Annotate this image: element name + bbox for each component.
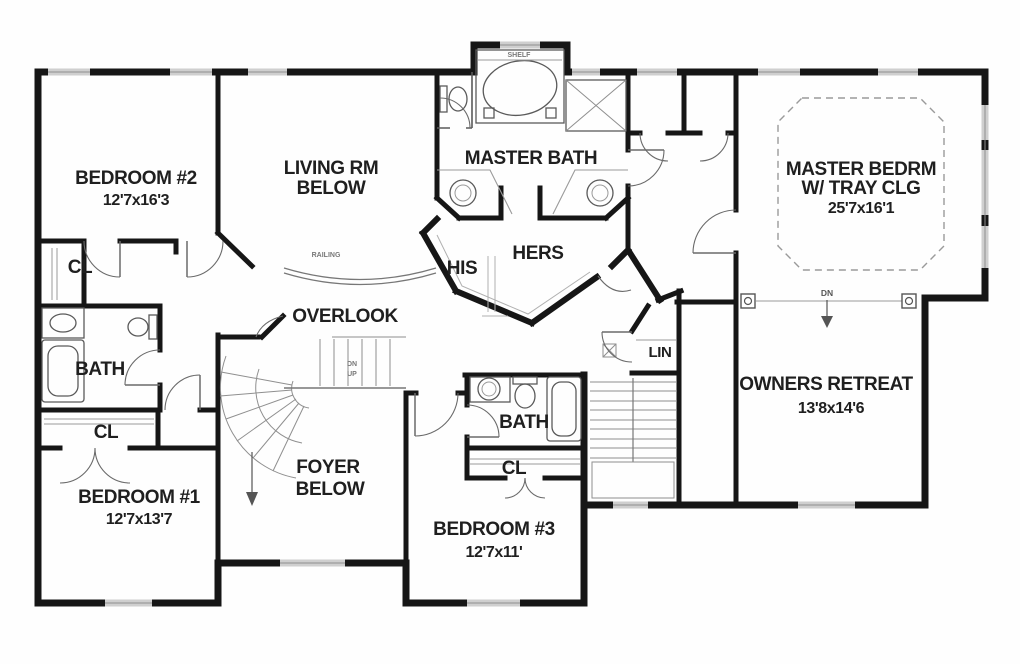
label-railing: RAILING [312, 252, 341, 259]
overlook-railing [284, 268, 436, 285]
label-foyer-1: FOYER [296, 457, 360, 478]
label-closet-bedroom1: CL [94, 422, 119, 443]
label-living-room-2: BELOW [297, 178, 366, 199]
label-overlook: OVERLOOK [292, 306, 398, 327]
label-linen-closet: LIN [649, 344, 672, 361]
label-owners-retreat: OWNERS RETREAT [739, 374, 913, 395]
floor-plan-page: BEDROOM #2 12'7x16'3 LIVING RM BELOW MAS… [0, 0, 1020, 664]
toilet-tank [513, 377, 537, 384]
step-down-arrow-icon [821, 300, 833, 328]
label-hall-bath: BATH [75, 359, 125, 380]
toilet-tank [149, 315, 157, 339]
door-swings [60, 98, 736, 498]
label-owners-retreat-dims: 13'8x14'6 [798, 400, 865, 417]
label-bedroom1: BEDROOM #1 [78, 487, 200, 508]
label-closet-bedroom3: CL [502, 458, 527, 479]
label-bedroom2: BEDROOM #2 [75, 168, 197, 189]
garden-tub-icon [479, 55, 561, 121]
label-master-bedroom: MASTER BEDRM [786, 159, 936, 180]
toilet-icon [449, 87, 467, 111]
sink-icon [478, 378, 500, 400]
label-hers-closet: HERS [512, 243, 563, 264]
vanity [470, 377, 510, 402]
toilet-icon [515, 384, 535, 408]
sink-icon [587, 180, 613, 206]
label-shelf: SHELF [508, 52, 532, 59]
toilet-icon [128, 318, 148, 336]
label-stair-up: UP [347, 371, 357, 378]
label-foyer-2: BELOW [296, 479, 365, 500]
sink-icon [50, 314, 76, 332]
label-bedroom3-dims: 12'7x11' [466, 544, 523, 561]
label-master-bath: MASTER BATH [465, 148, 597, 169]
column-icon [741, 294, 755, 308]
label-bedroom3-bath: BATH [499, 412, 549, 433]
label-his-closet: HIS [447, 258, 477, 279]
label-stair-dn: DN [347, 361, 357, 368]
annotations: RAILING SHELF DN UP DN [312, 52, 834, 378]
label-bedroom3: BEDROOM #3 [433, 519, 555, 540]
label-master-bedroom-2: W/ TRAY CLG [801, 178, 920, 199]
label-bedroom1-dims: 12'7x13'7 [106, 511, 173, 528]
sink-icon [450, 180, 476, 206]
label-master-bedroom-dims: 25'7x16'1 [828, 200, 895, 217]
hall-bath-fixtures [42, 308, 157, 402]
column-icon [902, 294, 916, 308]
back-staircase [590, 378, 676, 498]
label-closet-bedroom2: CL [68, 257, 93, 278]
label-step-dn: DN [821, 288, 833, 298]
label-living-room-1: LIVING RM [284, 158, 379, 179]
vanity [42, 308, 84, 338]
floor-plan-drawing: BEDROOM #2 12'7x16'3 LIVING RM BELOW MAS… [0, 0, 1020, 664]
label-bedroom2-dims: 12'7x16'3 [103, 192, 170, 209]
